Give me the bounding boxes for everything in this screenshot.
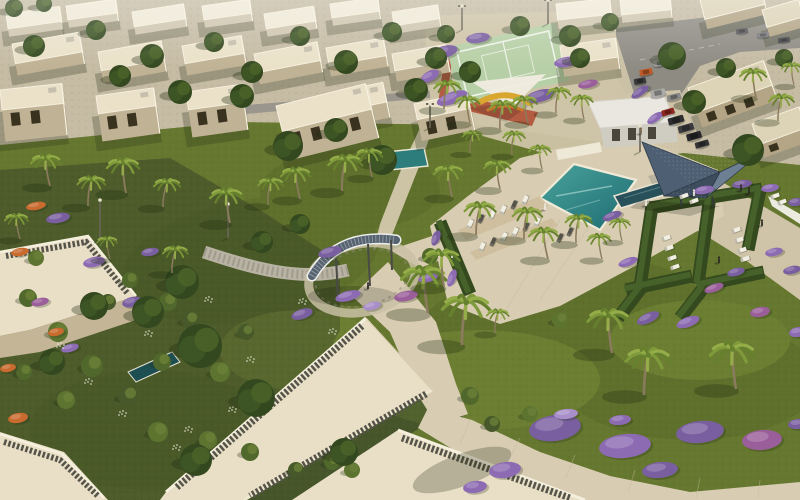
render-canvas: [0, 0, 800, 500]
clubhouse-door: [612, 129, 620, 141]
aerial-community-render: [0, 0, 800, 500]
clubhouse-door: [628, 128, 636, 140]
villa: [89, 88, 162, 152]
villa: [0, 83, 69, 151]
clubhouse-door: [648, 127, 656, 139]
atmospheric-haze: [0, 0, 800, 70]
pergola-post: [391, 240, 392, 270]
